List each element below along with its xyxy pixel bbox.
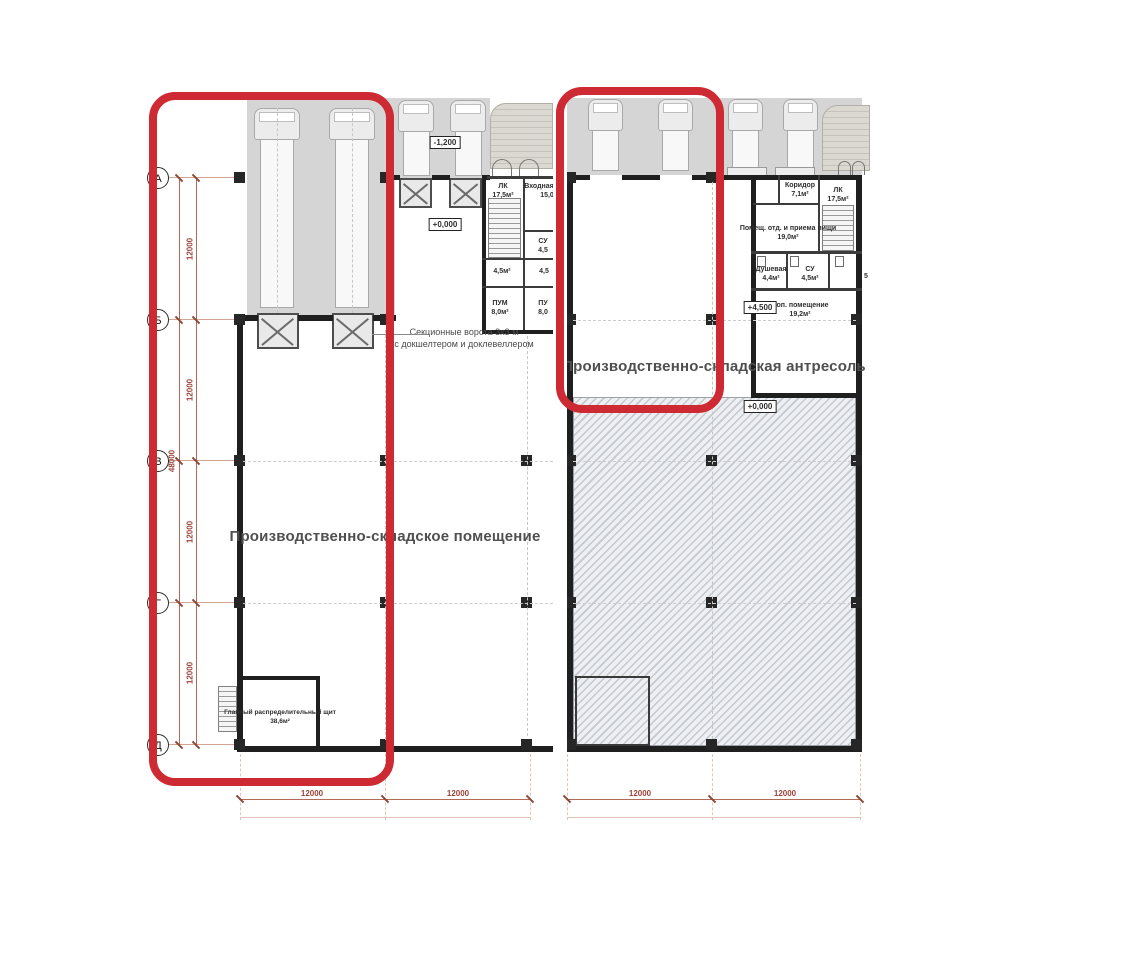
dim-extension [712,754,713,820]
room-label-name: ПУ [538,299,547,308]
room-label-area: 8,0м² [491,308,508,317]
room-label-area: 4,5 [538,246,548,255]
truck-cab [728,99,763,131]
dimension-line [567,817,860,818]
room-label-name: ЛК [498,182,507,191]
wall-segment [432,175,450,180]
truck-windshield [733,103,758,113]
room-label-area: 17,5м² [827,195,848,204]
wall-segment [751,393,862,398]
room-label-cut: 5 [864,272,868,281]
dock-leveller [449,178,482,208]
dimension-line [240,817,530,818]
gate-annotation-line2: с докшелтером и доклевеллером [394,339,533,349]
truck [728,99,763,171]
truck-cab [783,99,818,131]
partition [482,258,553,260]
room-below-outline [575,676,650,746]
wall-segment [755,175,862,180]
elevation-badge: +0,000 [429,218,462,231]
room-label-name: ПУМ [492,299,507,308]
truck-windshield [788,103,813,113]
gate-annotation-line1: Секционные ворота 3х3 м [410,327,519,337]
room-label-name: СУ [538,237,547,246]
truck-windshield [403,104,429,114]
dim-extension [567,754,568,820]
room-label-area: 4,5 [539,267,549,276]
grid-line [573,603,856,604]
truck-trailer [732,129,759,171]
column-marker [521,739,532,750]
room-label-area: 19,0м² [777,233,798,242]
room-label-area: 4,5м² [493,267,510,276]
elevation-badge: -1,200 [430,136,461,149]
column-marker [851,739,862,750]
partition [523,178,525,330]
room-label-area: 17,5м² [492,191,513,200]
dim-extension [530,754,531,820]
truck-trailer [403,130,430,176]
room-label-name: СУ [805,265,814,274]
highlight-box-warehouse [149,92,394,786]
staircase [488,198,521,258]
truck [783,99,818,171]
elevation-badge: +0,000 [744,400,777,413]
door-swing-arc [852,161,865,175]
door-swing-arc [492,159,512,176]
truck-cab [398,100,434,132]
dim-extension [860,754,861,820]
room-label-name: Душевая [756,265,787,274]
room-label-name: Входная [524,182,554,191]
room-label-name: Коридор [785,181,815,190]
partition [751,288,862,291]
room-label-area: 15,0 [540,191,554,200]
room-label-name: ЛК [833,186,842,195]
sanitary-fixture [835,256,844,267]
room-label-area: 19,2м² [789,310,810,319]
highlight-box-mezzanine [556,87,724,413]
room-label-name: Доп. помещение [771,301,828,310]
column-marker [706,739,717,750]
partition [753,203,820,205]
partition [828,253,830,290]
wall-segment [487,176,553,179]
partition [482,286,553,288]
truck [398,100,434,176]
room-label-area: 7,1м² [791,190,808,199]
truck-cab [450,100,486,132]
dim-label-bottom: 12000 [774,789,796,798]
dim-label-bottom: 12000 [301,789,323,798]
grid-line [573,461,856,462]
dim-label-bottom: 12000 [447,789,469,798]
room-label-area: 8,0 [538,308,548,317]
dim-label-bottom: 12000 [629,789,651,798]
truck-trailer [787,129,814,171]
wall-segment [482,175,486,334]
partition [778,175,780,205]
room-label-area: 4,5м² [801,274,818,283]
partition [751,251,862,254]
door-swing-arc [519,159,539,176]
room-label-name: Помещ. отд. и приема пищи [740,224,836,233]
partition [523,230,553,232]
truck-windshield [455,104,481,114]
floor-plan-canvas: 48000 12000 12000 12000 12000 А Б В Г Д [0,0,1123,965]
room-label-area: 4,4м² [762,274,779,283]
door-swing-arc [838,161,851,175]
sanitary-fixture [790,256,799,267]
partition [818,175,820,253]
elevation-badge: +4,500 [744,301,777,314]
dock-leveller [399,178,432,208]
